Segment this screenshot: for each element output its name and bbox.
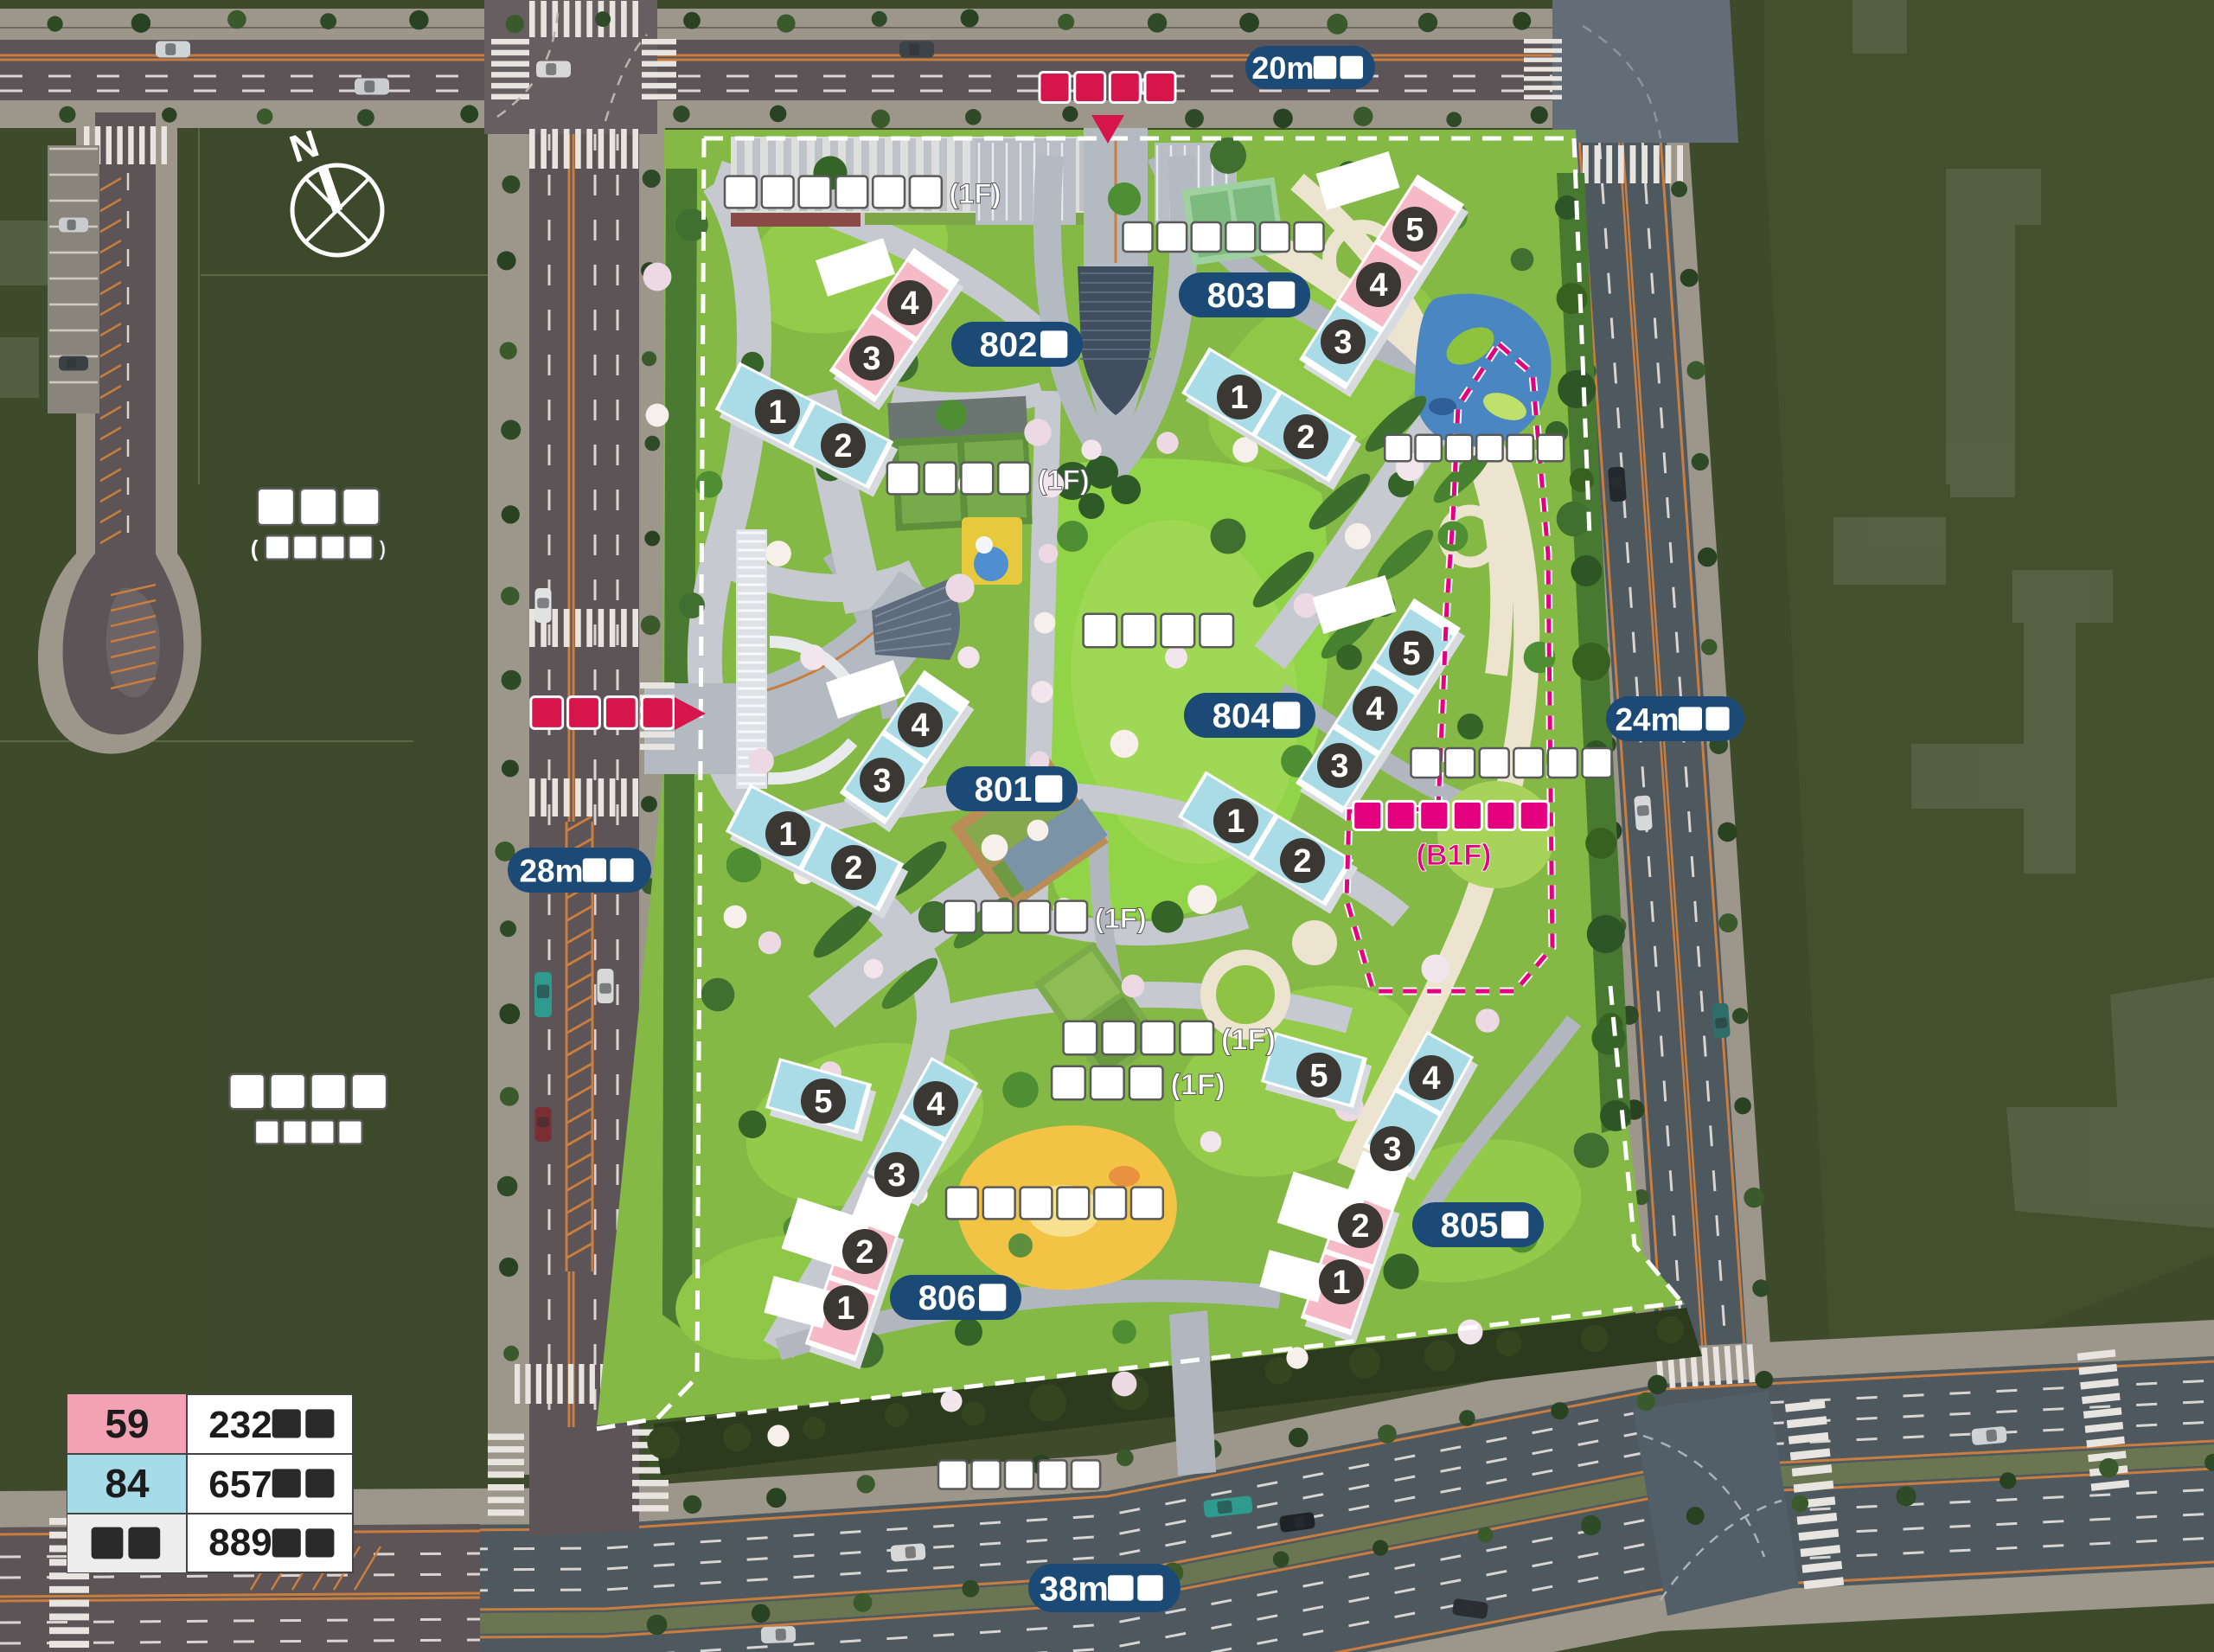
svg-text:5: 5	[1309, 1058, 1328, 1094]
svg-text:5: 5	[1402, 636, 1420, 672]
svg-text:(B1F): (B1F)	[1417, 839, 1492, 872]
svg-text:1: 1	[1230, 380, 1248, 416]
svg-text:805: 805	[1441, 1207, 1499, 1245]
svg-text:2: 2	[1351, 1208, 1369, 1245]
svg-text:59: 59	[105, 1401, 149, 1446]
svg-text:1: 1	[1226, 804, 1245, 840]
svg-text:38m: 38m	[1040, 1570, 1109, 1608]
svg-text:802: 802	[980, 326, 1038, 364]
svg-text:801: 801	[975, 771, 1033, 809]
svg-text:232: 232	[208, 1404, 272, 1446]
svg-text:2: 2	[1293, 843, 1311, 880]
svg-text:5: 5	[814, 1084, 832, 1120]
svg-text:(1F): (1F)	[949, 177, 1001, 209]
svg-text:1: 1	[778, 816, 797, 853]
svg-text:4: 4	[1369, 267, 1387, 304]
svg-text:(1F): (1F)	[1170, 1068, 1225, 1101]
svg-text:4: 4	[911, 708, 929, 744]
svg-text:2: 2	[844, 850, 862, 887]
svg-text:(1F): (1F)	[1221, 1023, 1276, 1056]
svg-text:2: 2	[855, 1234, 873, 1271]
svg-text:): )	[379, 538, 386, 561]
svg-text:3: 3	[887, 1157, 905, 1194]
svg-text:20m: 20m	[1251, 50, 1314, 86]
svg-text:3: 3	[1383, 1131, 1401, 1168]
svg-text:3: 3	[873, 763, 891, 799]
svg-text:4: 4	[1422, 1060, 1440, 1097]
svg-text:889: 889	[208, 1521, 272, 1564]
svg-text:2: 2	[1296, 419, 1315, 456]
svg-text:3: 3	[1330, 748, 1348, 784]
svg-text:803: 803	[1207, 277, 1265, 315]
svg-text:84: 84	[105, 1461, 150, 1506]
svg-text:(: (	[251, 535, 259, 561]
svg-text:28m: 28m	[519, 853, 583, 888]
svg-text:4: 4	[1366, 691, 1384, 727]
svg-text:3: 3	[862, 341, 880, 377]
svg-text:1: 1	[836, 1290, 854, 1327]
svg-text:4: 4	[900, 285, 918, 322]
svg-text:657: 657	[208, 1463, 272, 1506]
svg-text:24m: 24m	[1615, 701, 1679, 737]
svg-text:3: 3	[1334, 324, 1352, 361]
svg-text:1: 1	[1332, 1265, 1350, 1301]
svg-text:806: 806	[918, 1279, 976, 1317]
svg-text:804: 804	[1213, 697, 1270, 735]
svg-text:5: 5	[1405, 212, 1424, 248]
svg-text:(1F): (1F)	[1095, 902, 1147, 934]
svg-text:1: 1	[768, 394, 786, 431]
svg-text:2: 2	[834, 428, 852, 464]
svg-text:4: 4	[926, 1086, 944, 1123]
svg-text:(1F): (1F)	[1038, 464, 1090, 496]
